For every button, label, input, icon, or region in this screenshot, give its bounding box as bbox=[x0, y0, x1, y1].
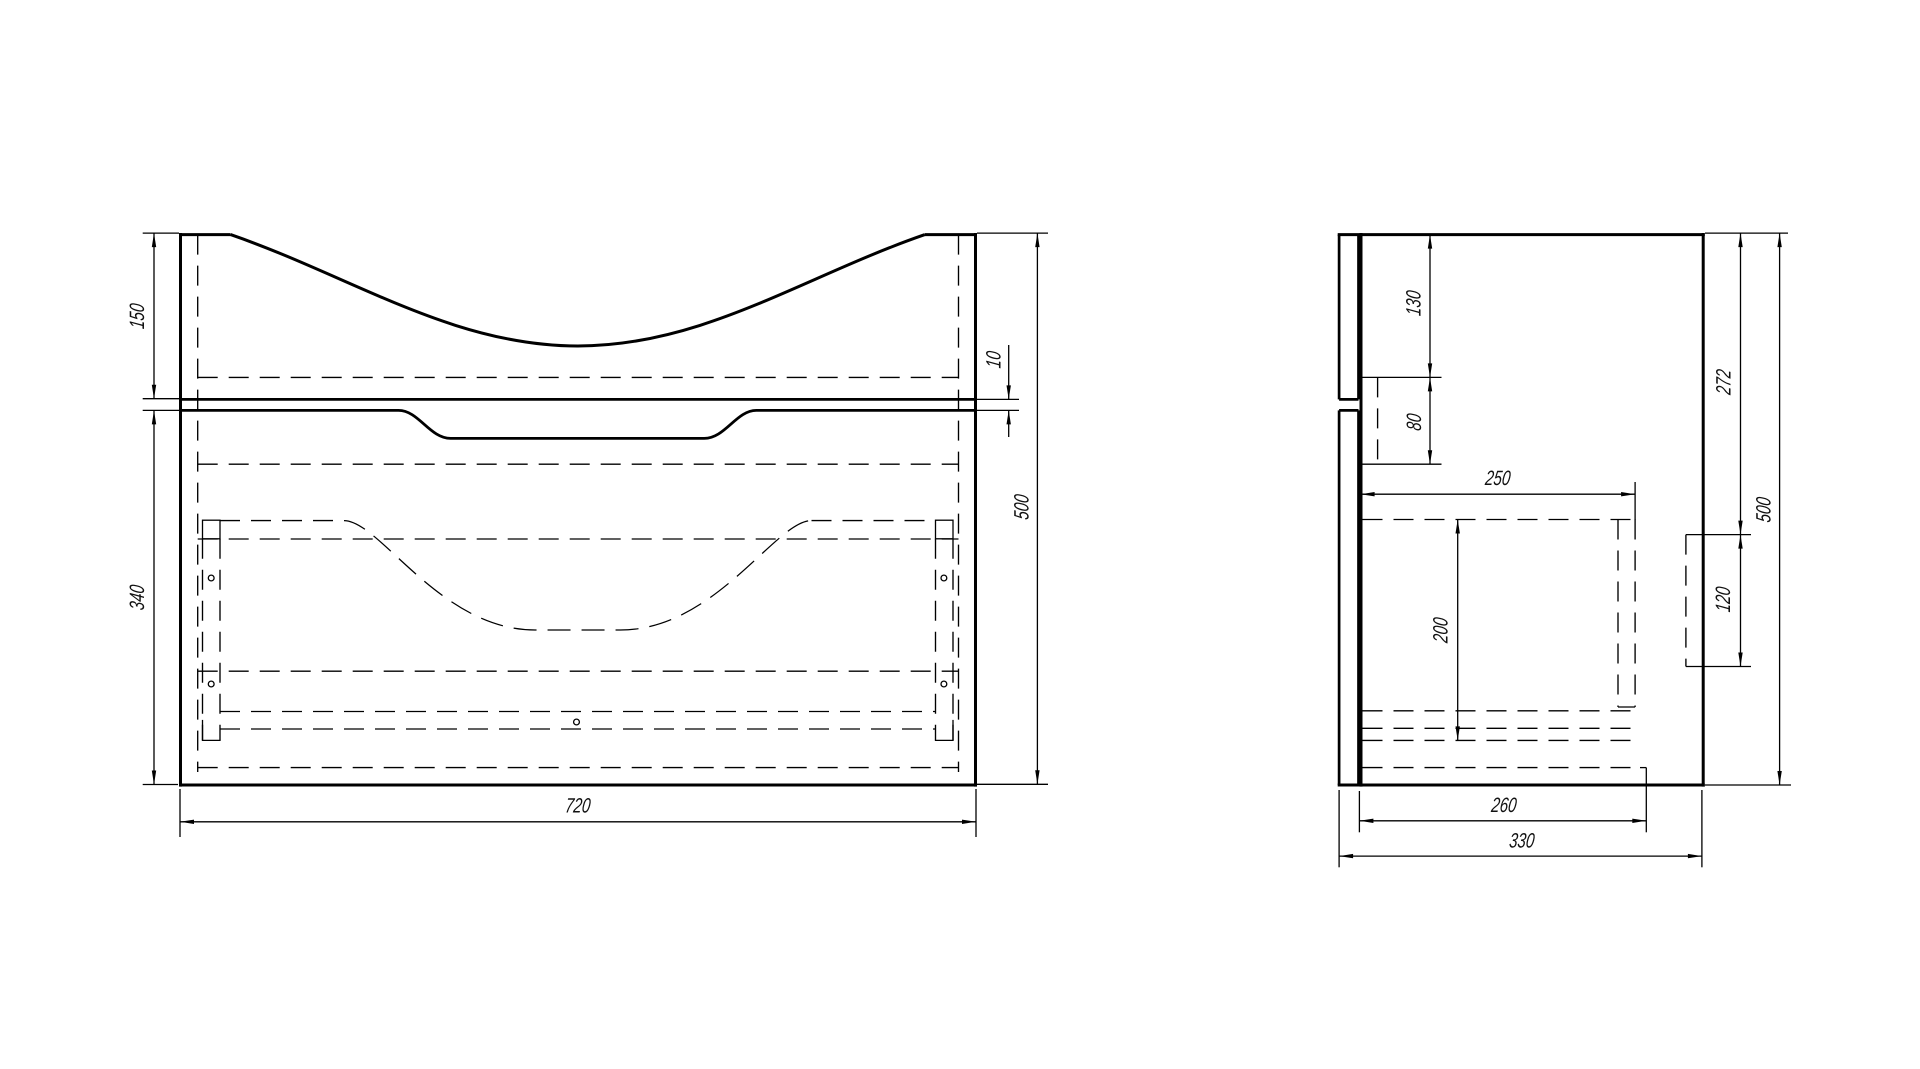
svg-text:500: 500 bbox=[1752, 496, 1775, 524]
svg-text:720: 720 bbox=[564, 794, 592, 817]
svg-text:10: 10 bbox=[982, 350, 1005, 370]
svg-text:272: 272 bbox=[1712, 368, 1735, 397]
svg-text:200: 200 bbox=[1429, 616, 1452, 645]
svg-text:260: 260 bbox=[1489, 794, 1518, 817]
svg-text:150: 150 bbox=[126, 302, 149, 330]
svg-text:340: 340 bbox=[126, 583, 149, 611]
svg-text:250: 250 bbox=[1483, 467, 1512, 490]
svg-text:500: 500 bbox=[1010, 493, 1033, 521]
svg-text:130: 130 bbox=[1402, 289, 1425, 317]
svg-text:330: 330 bbox=[1508, 829, 1536, 852]
svg-text:120: 120 bbox=[1712, 585, 1735, 613]
svg-text:80: 80 bbox=[1403, 412, 1426, 432]
